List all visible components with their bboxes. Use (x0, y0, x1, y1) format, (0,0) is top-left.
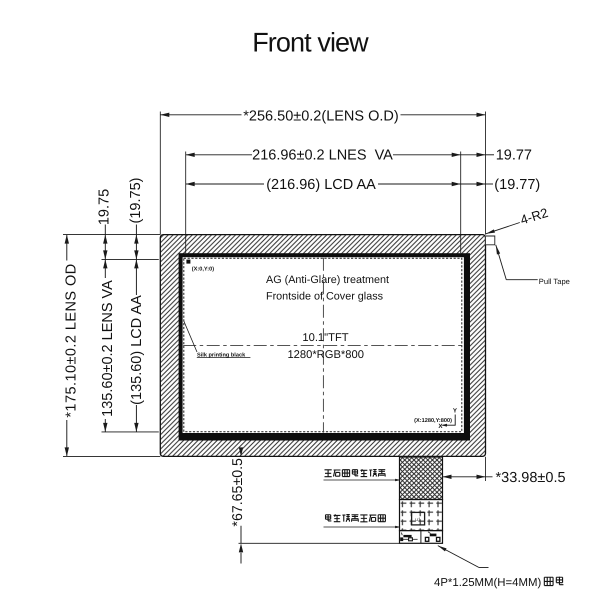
svg-text:(X:1280,Y:800): (X:1280,Y:800) (414, 417, 452, 424)
svg-text:10.1"TFT: 10.1"TFT (302, 332, 348, 344)
svg-text:*33.98±0.5: *33.98±0.5 (496, 470, 566, 486)
svg-text:(135.60) LCD AA: (135.60) LCD AA (129, 295, 145, 405)
svg-text:Front view: Front view (252, 27, 369, 57)
svg-text:1280*RGB*800: 1280*RGB*800 (287, 349, 364, 361)
svg-text:*67.65±0.5: *67.65±0.5 (230, 458, 246, 527)
svg-text:*175.10±0.2 LENS OD: *175.10±0.2 LENS OD (63, 263, 79, 417)
svg-text:μ1: μ1 (415, 517, 421, 523)
svg-text:19.75: 19.75 (97, 189, 113, 225)
svg-text:(19.75): (19.75) (128, 178, 144, 224)
svg-text:(19.77): (19.77) (494, 177, 540, 193)
svg-text:135.60±0.2 LENS VA: 135.60±0.2 LENS VA (100, 280, 116, 417)
svg-text:19.77: 19.77 (496, 147, 532, 163)
svg-text:216.96±0.2 LNES VA: 216.96±0.2 LNES VA (252, 147, 393, 163)
svg-text:(216.96) LCD AA: (216.96) LCD AA (266, 177, 376, 193)
svg-text:AG (Anti-Glare) treatment: AG (Anti-Glare) treatment (266, 274, 389, 286)
svg-text:(X:0,Y:0): (X:0,Y:0) (192, 265, 214, 272)
svg-text:*256.50±0.2(LENS O.D): *256.50±0.2(LENS O.D) (243, 108, 398, 124)
svg-text:4P*1.25MM(H=4MM): 4P*1.25MM(H=4MM) (434, 577, 541, 589)
svg-text:Frontside of Cover glass: Frontside of Cover glass (266, 291, 384, 303)
svg-text:Pull Tape: Pull Tape (539, 277, 570, 286)
